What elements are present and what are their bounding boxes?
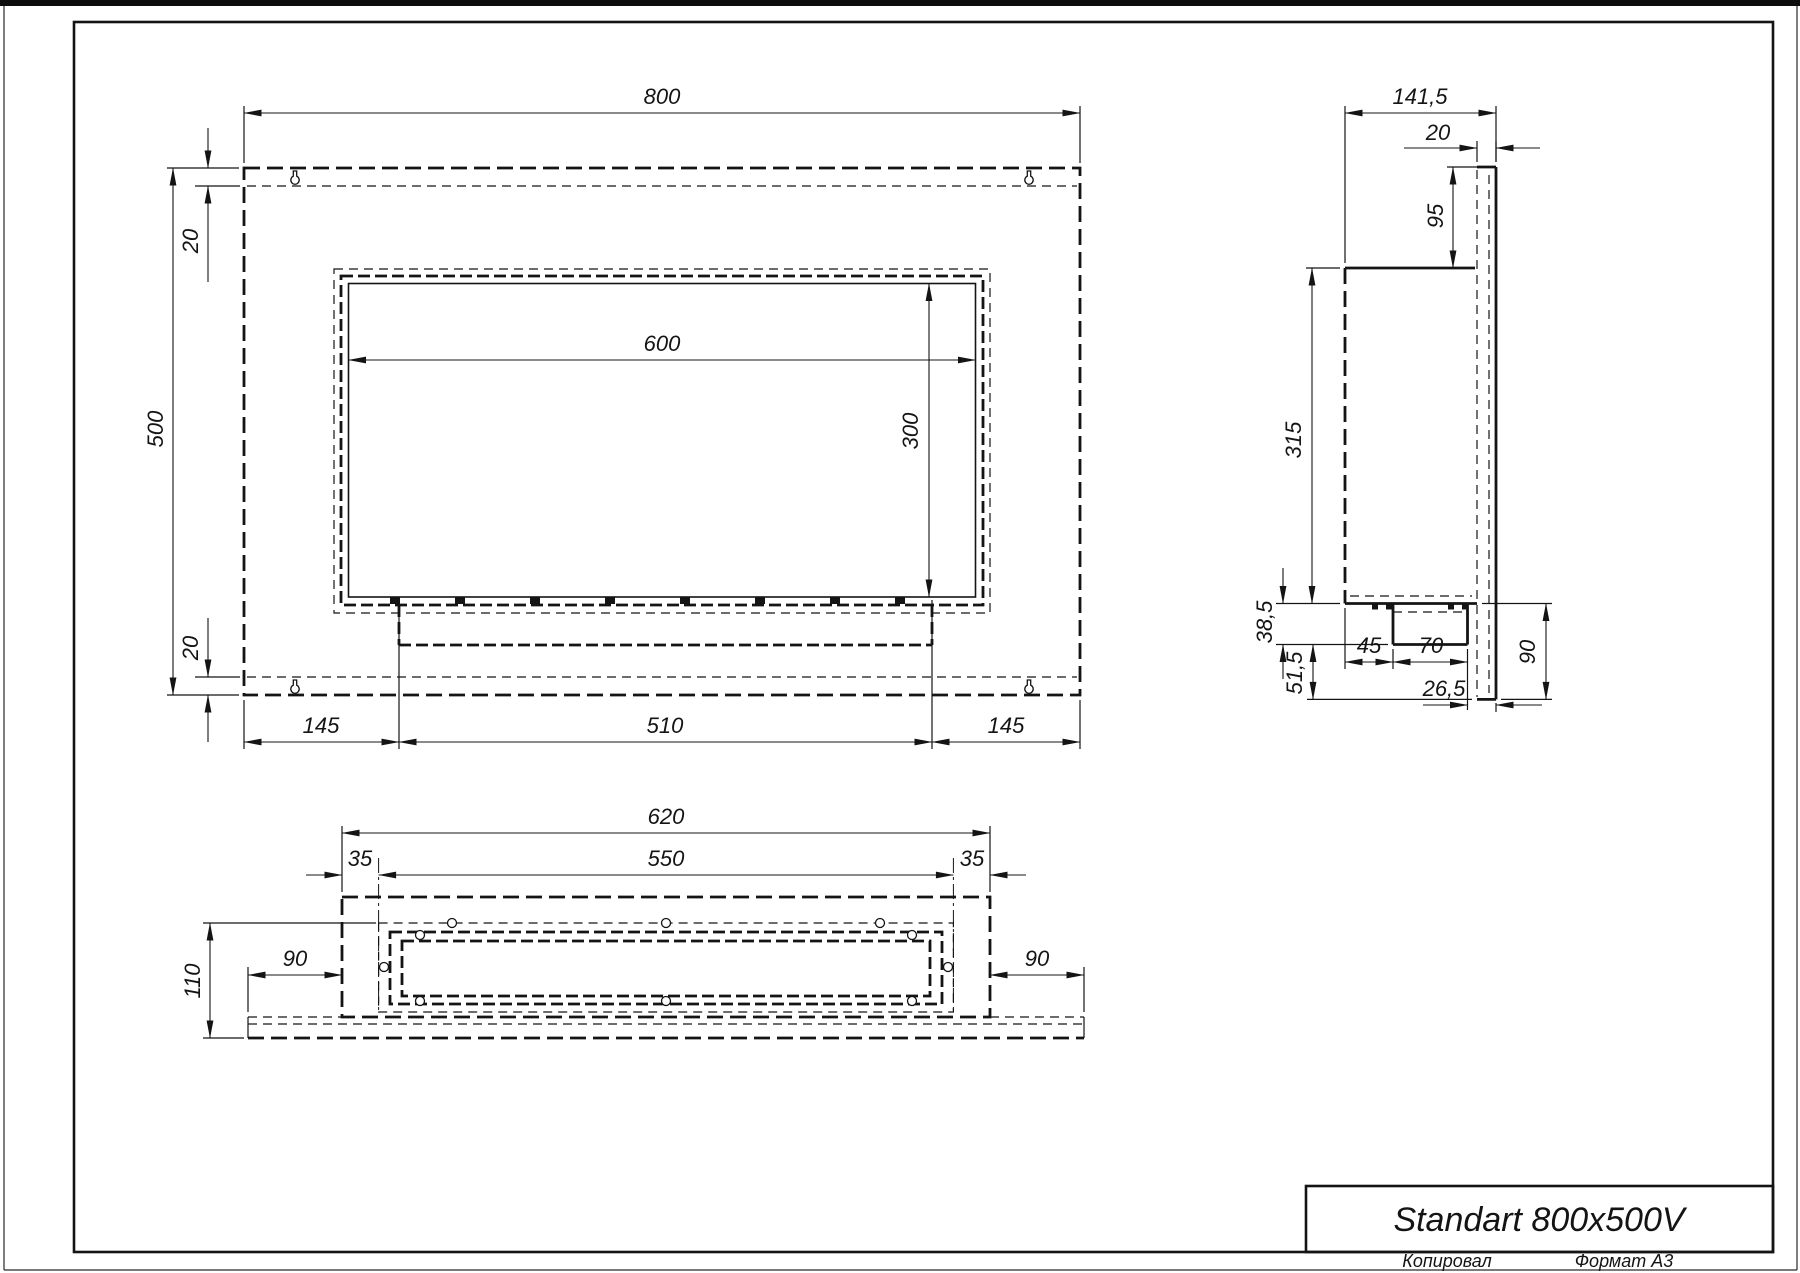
drawing-sheet: 800 500 20 20 600 xyxy=(0,0,1800,1273)
keyhole-icon xyxy=(291,171,299,184)
side-body xyxy=(1345,268,1477,610)
dim-label-110: 110 xyxy=(180,963,205,999)
bottom-view: 620 550 35 35 90 90 110 xyxy=(180,804,1084,1038)
dim-label-90-left: 90 xyxy=(283,946,308,971)
dim-label-45: 45 xyxy=(1357,633,1382,658)
dim-label-35-right: 35 xyxy=(960,846,985,871)
dim-side-back-gap: 26,5 xyxy=(1422,676,1542,712)
keyhole-icon xyxy=(1025,171,1033,184)
dim-label-70: 70 xyxy=(1419,633,1444,658)
dim-label-315: 315 xyxy=(1281,421,1306,458)
dim-label-38-5: 38,5 xyxy=(1252,600,1277,644)
dim-label-26-5: 26,5 xyxy=(1422,676,1467,701)
title-block: Standart 800x500V xyxy=(1306,1186,1773,1252)
dim-label-800: 800 xyxy=(644,84,681,109)
dim-side-body-height: 315 xyxy=(1276,268,1340,604)
dim-label-51-5: 51,5 xyxy=(1282,651,1307,695)
front-tray-hidden xyxy=(399,605,932,645)
sheet-footer: Копировал Формат А3 xyxy=(1402,1251,1673,1271)
footer-format-label: Формат А3 xyxy=(1575,1251,1674,1271)
front-view: 800 500 20 20 600 xyxy=(143,84,1080,749)
dim-label-20-bottom: 20 xyxy=(178,635,203,661)
front-opening xyxy=(334,269,990,613)
title-block-name: Standart 800x500V xyxy=(1393,1201,1687,1239)
footer-copied-label: Копировал xyxy=(1402,1251,1492,1271)
dim-label-90-right: 90 xyxy=(1025,946,1050,971)
drawing-frame xyxy=(74,22,1773,1252)
dim-front-opening-width: 600 xyxy=(349,331,976,360)
dim-label-300: 300 xyxy=(898,412,923,449)
dim-label-600: 600 xyxy=(644,331,681,356)
dim-label-145-right: 145 xyxy=(988,713,1025,738)
dim-side-top-offset: 95 xyxy=(1423,167,1477,268)
dim-label-141-5: 141,5 xyxy=(1392,84,1448,109)
front-wall-plate xyxy=(244,168,1080,695)
dim-label-510: 510 xyxy=(647,713,684,738)
dim-label-plate-20: 20 xyxy=(1425,120,1451,145)
dim-label-550: 550 xyxy=(648,846,685,871)
dim-label-side-90: 90 xyxy=(1515,639,1540,664)
bottom-plate-strip xyxy=(248,1017,1084,1038)
dim-front-margin-bottom: 20 xyxy=(178,618,240,742)
dim-front-bottom-row: 145 510 145 xyxy=(244,600,1080,749)
side-back-plate xyxy=(1477,167,1496,699)
dim-label-620: 620 xyxy=(648,804,685,829)
side-view: 141,5 20 95 315 38,5 xyxy=(1252,84,1552,712)
dim-label-145-left: 145 xyxy=(303,713,340,738)
dim-side-plate: 20 xyxy=(1404,120,1540,162)
keyhole-icon xyxy=(291,680,299,693)
dim-front-margin-top: 20 xyxy=(178,128,240,282)
dim-side-lower-height: 90 xyxy=(1482,604,1552,700)
dim-bottom-inner-row: 550 35 35 xyxy=(306,846,1026,1012)
dim-label-500: 500 xyxy=(143,410,168,447)
drawing-canvas: 800 500 20 20 600 xyxy=(0,0,1800,1273)
page-edges xyxy=(0,0,1800,1270)
dim-front-opening-height: 300 xyxy=(898,284,929,598)
dim-label-20-top: 20 xyxy=(178,228,203,254)
dim-front-width: 800 xyxy=(244,84,1080,163)
dim-label-35-left: 35 xyxy=(348,846,373,871)
dim-label-95: 95 xyxy=(1423,203,1448,228)
dim-side-depth: 141,5 xyxy=(1345,84,1496,263)
dim-bottom-depth: 110 xyxy=(180,923,376,1038)
keyhole-icon xyxy=(1025,680,1033,693)
